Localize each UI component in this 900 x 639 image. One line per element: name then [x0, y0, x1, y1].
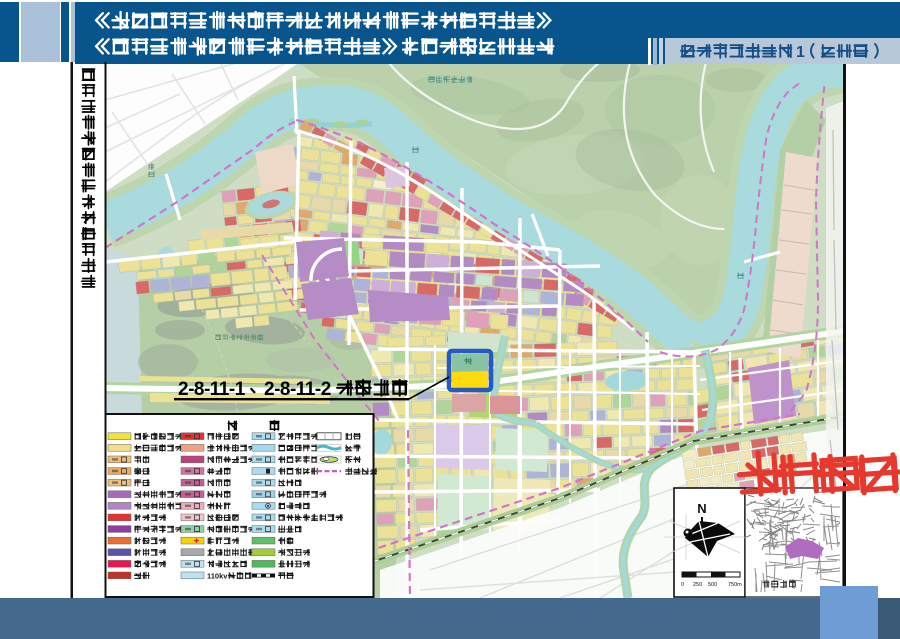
svg-text:N: N — [697, 501, 706, 516]
svg-text:2-8-11-2: 2-8-11-2 — [264, 379, 331, 400]
svg-text:500: 500 — [708, 582, 717, 588]
svg-text:2-8-11-1: 2-8-11-1 — [178, 379, 246, 400]
svg-text:110kv: 110kv — [207, 572, 228, 581]
svg-text:250: 250 — [693, 582, 702, 588]
svg-text:750m: 750m — [728, 582, 742, 588]
svg-text:1: 1 — [796, 44, 805, 61]
svg-text:0: 0 — [681, 582, 684, 588]
